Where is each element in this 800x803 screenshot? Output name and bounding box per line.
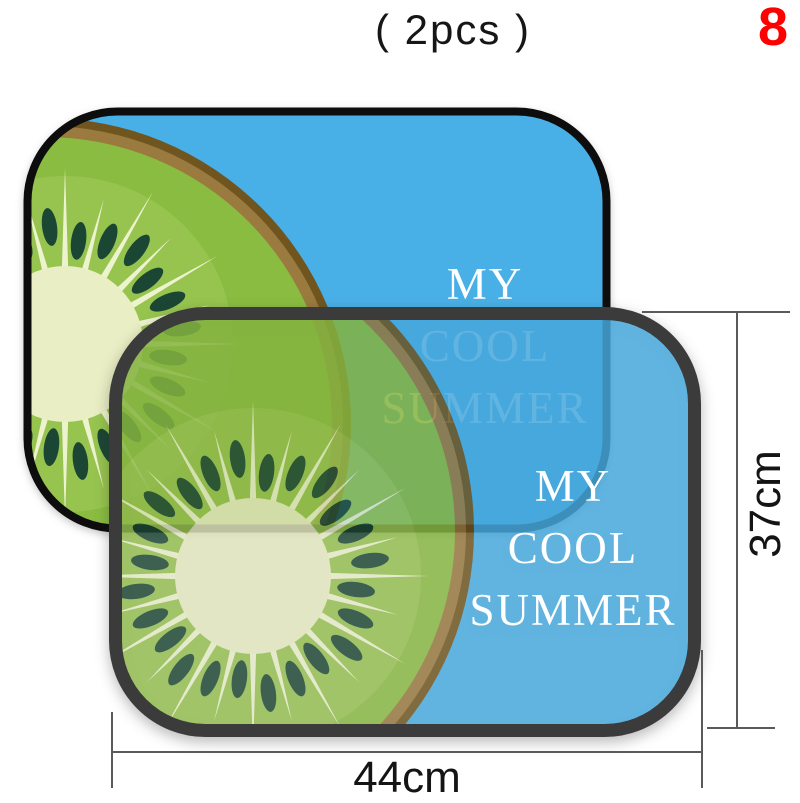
kiwi-ray	[0, 302, 4, 331]
front-sunshade: MY COOL SUMMER	[108, 306, 702, 738]
kiwi-ray	[0, 235, 22, 301]
height-dimension-tick-top	[642, 311, 790, 313]
kiwi-ray	[0, 357, 4, 386]
page-number: 8	[758, 0, 788, 58]
caption-line-1: MY	[447, 259, 524, 309]
kiwi-seed	[0, 418, 11, 457]
height-dimension-tick-bottom	[707, 727, 775, 729]
kiwi-ray	[0, 387, 22, 453]
caption-line-2: COOL	[508, 523, 639, 573]
kiwi-ray	[0, 253, 11, 315]
kiwi-ray	[0, 341, 1, 348]
height-dimension-line	[736, 312, 738, 728]
width-dimension-label: 44cm	[112, 753, 702, 803]
caption-line-3: SUMMER	[469, 585, 676, 635]
kiwi-ray	[0, 373, 11, 435]
kiwi-seed	[0, 390, 2, 425]
caption-line-1: MY	[535, 461, 612, 511]
height-dimension-label: 37cm	[742, 414, 790, 594]
kiwi-core	[175, 498, 331, 654]
kiwi-seed	[0, 242, 19, 281]
quantity-label: ( 2pcs )	[375, 6, 531, 54]
